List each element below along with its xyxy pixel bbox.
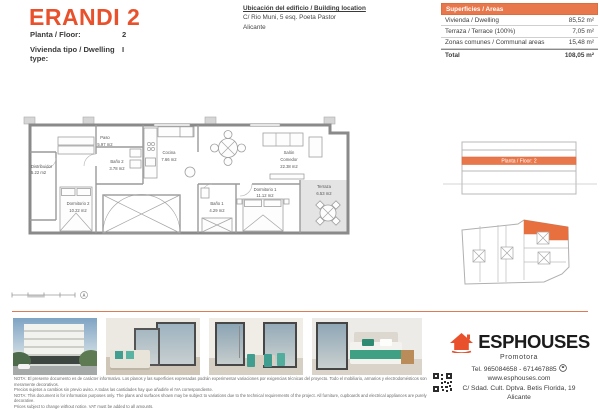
brand-logo-row: ESPHOUSES	[440, 331, 598, 353]
areas-row-label: Terraza / Terrace (100%)	[445, 28, 515, 35]
areas-total-label: Total	[445, 52, 460, 59]
room-label-distribuidor: Distribuidor	[31, 164, 53, 169]
brand-block: ESPHOUSES Promotora Tel. 965084658 - 671…	[440, 331, 598, 403]
contact-block: Tel. 965084658 - 671467885 www.esphouses…	[440, 364, 598, 403]
field-floor: Planta / Floor: 2	[30, 30, 126, 39]
facade-pillars	[24, 117, 335, 124]
svg-text:7.66 m2: 7.66 m2	[161, 157, 177, 162]
highlighted-floor-label: Planta / Floor: 2	[501, 159, 537, 165]
qr-code	[432, 372, 453, 393]
contact-web: www.esphouses.com	[440, 374, 598, 383]
areas-row-terrace: Terraza / Terrace (100%) 7,05 m²	[441, 26, 598, 37]
disclaimer: NOTA: El presente documento es de caráct…	[14, 376, 428, 409]
green-blanket	[350, 350, 402, 359]
building-plinth	[24, 356, 84, 364]
room-label-dormitorio2: Dormitorio 2	[67, 201, 90, 206]
areas-total-value: 108,05 m²	[565, 52, 594, 59]
contact-phone: Tel. 965084658 - 671467885	[440, 364, 598, 374]
field-dwelling-type-value: I	[122, 45, 124, 63]
building-location-street: C/ Rio Muni, 5 esq. Poeta Pastor	[243, 13, 366, 22]
north-arrow-icon	[81, 292, 88, 299]
disclaimer-line: NOTA: This document is for information p…	[14, 393, 428, 404]
floor-plan: Distribuidor 5.22 m2 Paso 5.97 m2 Baño 2…	[4, 92, 374, 307]
photo-building-exterior	[13, 318, 97, 375]
field-floor-value: 2	[122, 30, 126, 39]
chair	[264, 354, 272, 367]
areas-table-header: Superficies / Areas	[441, 3, 598, 15]
floor-lamp	[239, 326, 240, 358]
whatsapp-icon	[559, 364, 567, 372]
esphouses-house-icon	[448, 332, 475, 353]
cushion	[115, 351, 123, 359]
building-location-title: Ubicación del edificio / Building locati…	[243, 4, 366, 13]
areas-row-value: 85,52 m²	[569, 17, 594, 24]
footer-divider	[12, 311, 588, 312]
areas-row-label: Zonas comunes / Communal areas	[445, 39, 544, 46]
room-label-salon: Salón	[284, 150, 295, 155]
field-dwelling-type: Vivienda tipo / Dwelling type: I	[30, 45, 124, 63]
building-location-city: Alicante	[243, 23, 366, 32]
chair	[247, 354, 255, 367]
svg-text:3.78 m2: 3.78 m2	[109, 166, 125, 171]
photo-bedroom	[312, 318, 422, 375]
window	[316, 322, 348, 370]
window	[215, 322, 245, 366]
areas-row-value: 15,48 m²	[569, 39, 594, 46]
svg-text:11.12 m2: 11.12 m2	[256, 193, 274, 198]
disclaimer-line: Prices subject to change without notice.…	[14, 404, 428, 409]
page-title: ERANDI 2	[29, 4, 140, 31]
photo-strip	[13, 318, 422, 375]
cushion	[362, 339, 374, 346]
cushion	[126, 351, 134, 359]
areas-row-total: Total 108,05 m²	[441, 49, 598, 60]
room-label-paso: Paso	[100, 135, 110, 140]
svg-text:6.53 m2: 6.53 m2	[316, 191, 332, 196]
svg-text:Comedor: Comedor	[280, 157, 298, 162]
areas-row-value: 7,05 m²	[572, 28, 594, 35]
disclaimer-line: NOTA: El presente documento es de caráct…	[14, 376, 428, 387]
contact-city: Alicante	[440, 393, 598, 402]
photo-living-room	[106, 318, 200, 375]
areas-table: Superficies / Areas Vivienda / Dwelling …	[441, 3, 598, 60]
room-label-dormitorio1: Dormitorio 1	[254, 187, 277, 192]
stair-core	[103, 195, 180, 234]
brand-name: ESPHOUSES	[478, 331, 590, 353]
svg-text:5.97 m2: 5.97 m2	[97, 142, 113, 147]
pillow	[380, 339, 392, 346]
room-label-bano1: Baño 1	[210, 201, 224, 206]
chair	[277, 353, 285, 366]
scale-bar	[12, 293, 75, 298]
window	[156, 322, 196, 366]
building-elevation-diagram: Planta / Floor: 2	[440, 132, 600, 204]
svg-text:22.38 m2: 22.38 m2	[280, 164, 298, 169]
room-label-bano2: Baño 2	[110, 159, 124, 164]
nightstand	[401, 350, 414, 364]
field-dwelling-type-label: Vivienda tipo / Dwelling type:	[30, 45, 122, 63]
flyer-page: { "header": { "title": "ERANDI 2", "fiel…	[0, 0, 600, 400]
svg-text:10.22 m2: 10.22 m2	[69, 208, 87, 213]
photo-dining-area	[209, 318, 303, 375]
building-location: Ubicación del edificio / Building locati…	[243, 4, 366, 32]
contact-address: C/ Sdad. Cult. Dptva. Betis Florida, 19	[440, 384, 598, 393]
room-label-terraza: Terraza	[317, 184, 332, 189]
field-floor-label: Planta / Floor:	[30, 30, 122, 39]
areas-row-label: Vivienda / Dwelling	[445, 17, 499, 24]
site-plan-diagram	[440, 210, 600, 310]
car	[18, 364, 30, 369]
areas-row-communal: Zonas comunes / Communal areas 15,48 m²	[441, 38, 598, 49]
svg-text:5.22 m2: 5.22 m2	[31, 170, 47, 175]
brand-tagline: Promotora	[440, 354, 598, 361]
svg-text:4.29 m2: 4.29 m2	[209, 208, 225, 213]
areas-row-dwelling: Vivienda / Dwelling 85,52 m²	[441, 15, 598, 26]
room-label-cocina: Cocina	[162, 150, 176, 155]
